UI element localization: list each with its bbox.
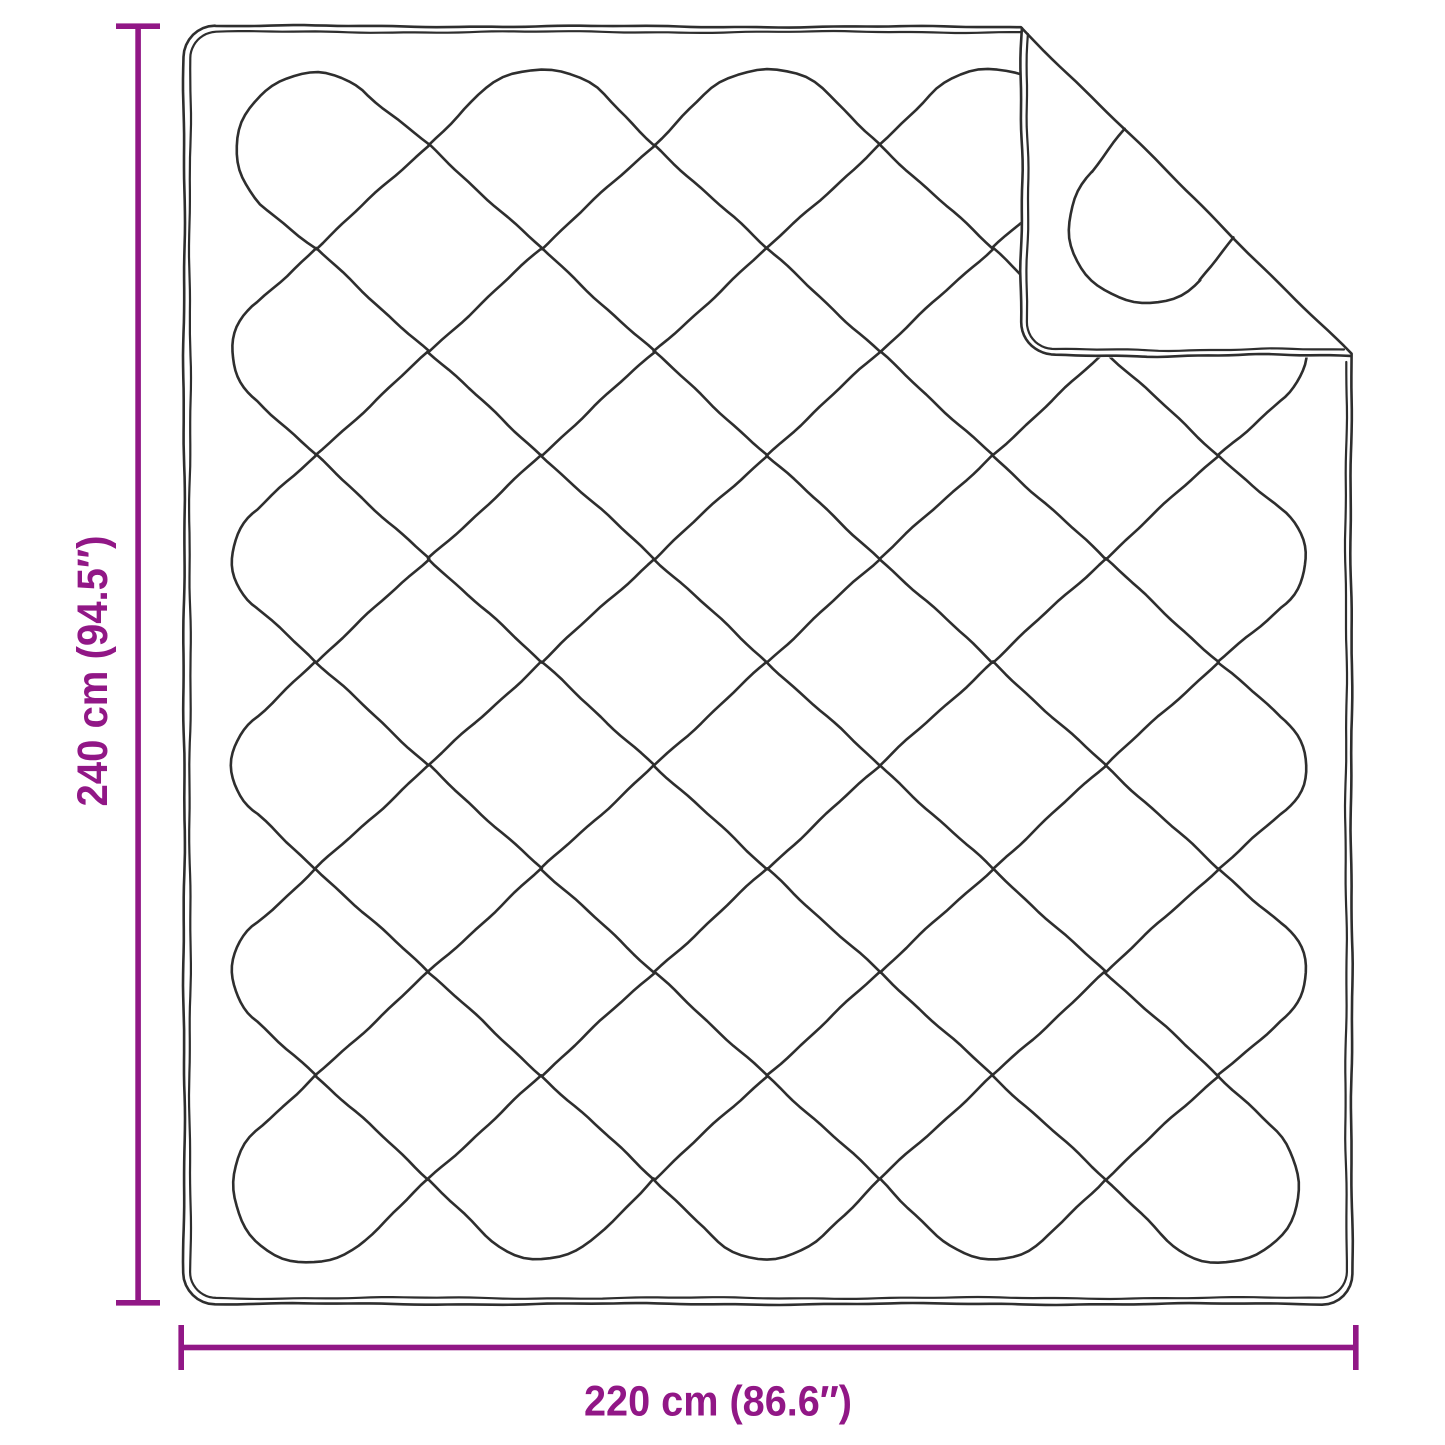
svg-text:240 cm (94.5″): 240 cm (94.5″) <box>70 536 117 807</box>
svg-text:220 cm (86.6″): 220 cm (86.6″) <box>584 1378 852 1425</box>
